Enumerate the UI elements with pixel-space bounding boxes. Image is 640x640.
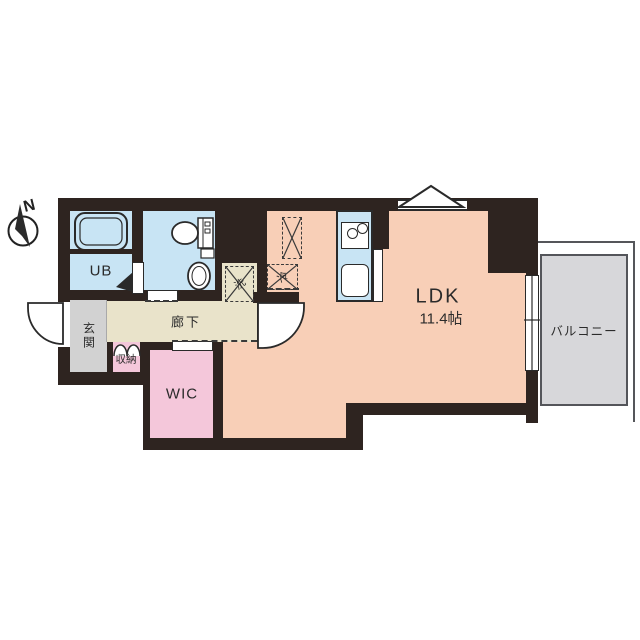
wall (253, 292, 299, 303)
label-wic: WIC (166, 386, 198, 403)
area-boundary-dashed (145, 300, 178, 302)
wall (373, 210, 389, 249)
refrigerator-space: 冷 (267, 264, 298, 290)
room-washroom (143, 211, 215, 290)
label-entrance: 玄関 (81, 322, 98, 350)
area-boundary-dashed (267, 288, 299, 290)
entrance-hall-divider (106, 300, 107, 342)
compass-icon: N (9, 197, 38, 247)
entrance-door-gap (58, 302, 70, 347)
label-hallway: 廊下 (171, 312, 201, 331)
exterior-cutout (58, 385, 143, 415)
washer-space: 洗 (225, 266, 254, 302)
stove-burner (357, 223, 368, 234)
wic-opening (172, 341, 213, 351)
kitchen-sink (341, 264, 369, 297)
balcony-window (525, 275, 539, 371)
label-unit-bath: UB (90, 263, 113, 280)
area-boundary-dashed (172, 340, 257, 342)
label-storage: 収納 (116, 352, 137, 367)
compass-north-label: N (22, 197, 37, 216)
label-ldk: LDK (416, 286, 461, 309)
label-ldk-size: 11.4帖 (419, 308, 462, 329)
label-balcony: バルコニー (550, 321, 617, 340)
equipment-space (282, 217, 302, 259)
unit-bath-door (132, 262, 144, 294)
room-ldk-area (223, 342, 346, 438)
room-ldk-area (488, 273, 526, 403)
x-mark-icon (283, 218, 301, 258)
wall-pillar (526, 415, 538, 423)
floor-plan: 冷 洗 N (0, 0, 640, 640)
kitchen-end-panel (373, 249, 383, 302)
top-window (398, 199, 467, 211)
